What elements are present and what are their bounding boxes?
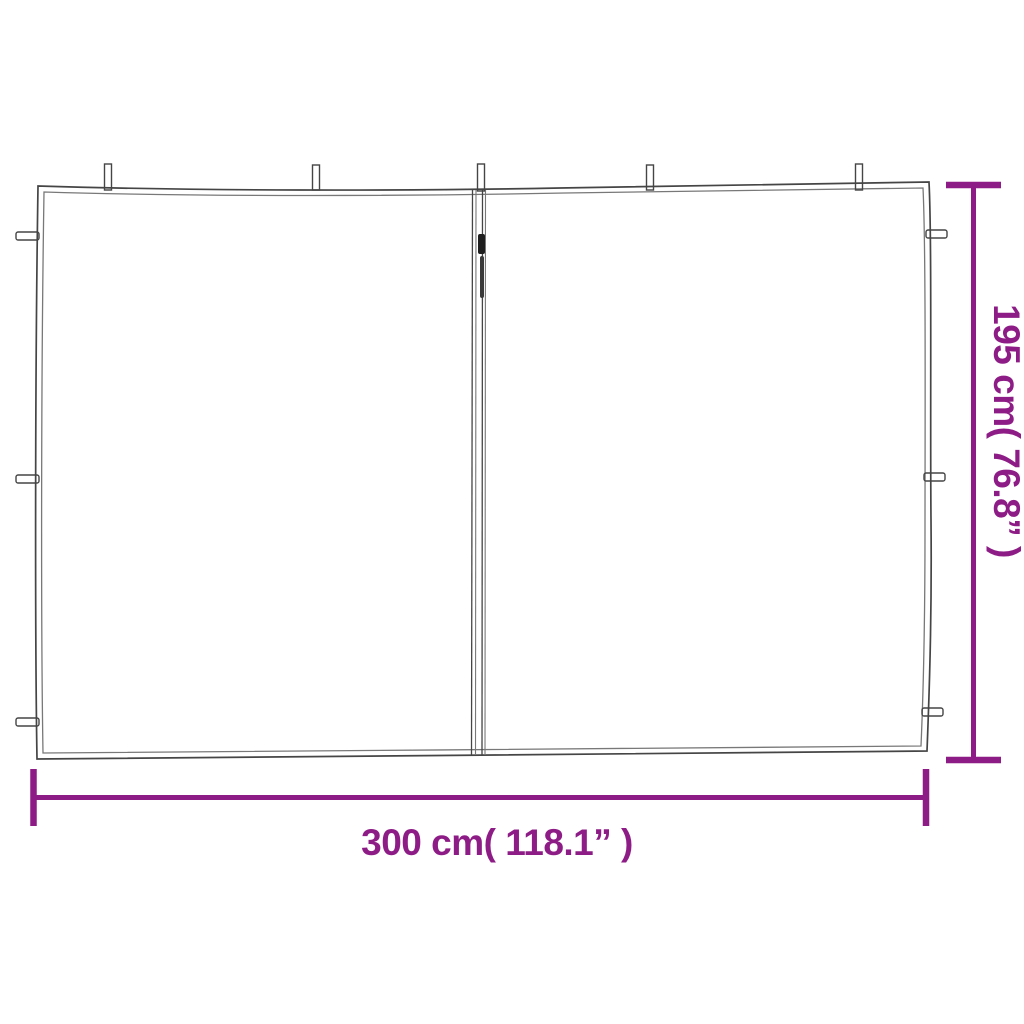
height-dimension: 195 cm( 76.8” )	[946, 185, 1024, 760]
zipper-slider	[478, 234, 485, 254]
pole-tab	[924, 473, 945, 481]
loop-tab	[313, 165, 320, 190]
sidewall-diagram-svg: 195 cm( 76.8” ) 300 cm( 118.1” )	[0, 0, 1024, 1024]
zipper-line-right-outer	[485, 190, 486, 755]
pole-tab	[16, 718, 39, 726]
top-loop-tabs	[105, 164, 863, 191]
loop-tab	[105, 164, 112, 190]
zipper-pull	[480, 256, 484, 298]
product-dimension-diagram: 195 cm( 76.8” ) 300 cm( 118.1” )	[0, 0, 1024, 1024]
pole-tab	[922, 708, 943, 716]
width-dimension: 300 cm( 118.1” )	[34, 769, 927, 863]
zipper	[472, 190, 486, 755]
zipper-line-left-outer	[472, 190, 473, 755]
sidewall-panel	[16, 164, 947, 759]
height-dimension-label: 195 cm( 76.8” )	[986, 304, 1024, 558]
loop-tab	[478, 164, 485, 191]
right-pole-tabs	[922, 230, 947, 716]
pole-tab	[926, 230, 947, 238]
width-dimension-label: 300 cm( 118.1” )	[361, 822, 633, 863]
zipper-line-left-inner	[476, 190, 477, 755]
loop-tab	[856, 164, 863, 190]
pole-tab	[16, 232, 39, 240]
